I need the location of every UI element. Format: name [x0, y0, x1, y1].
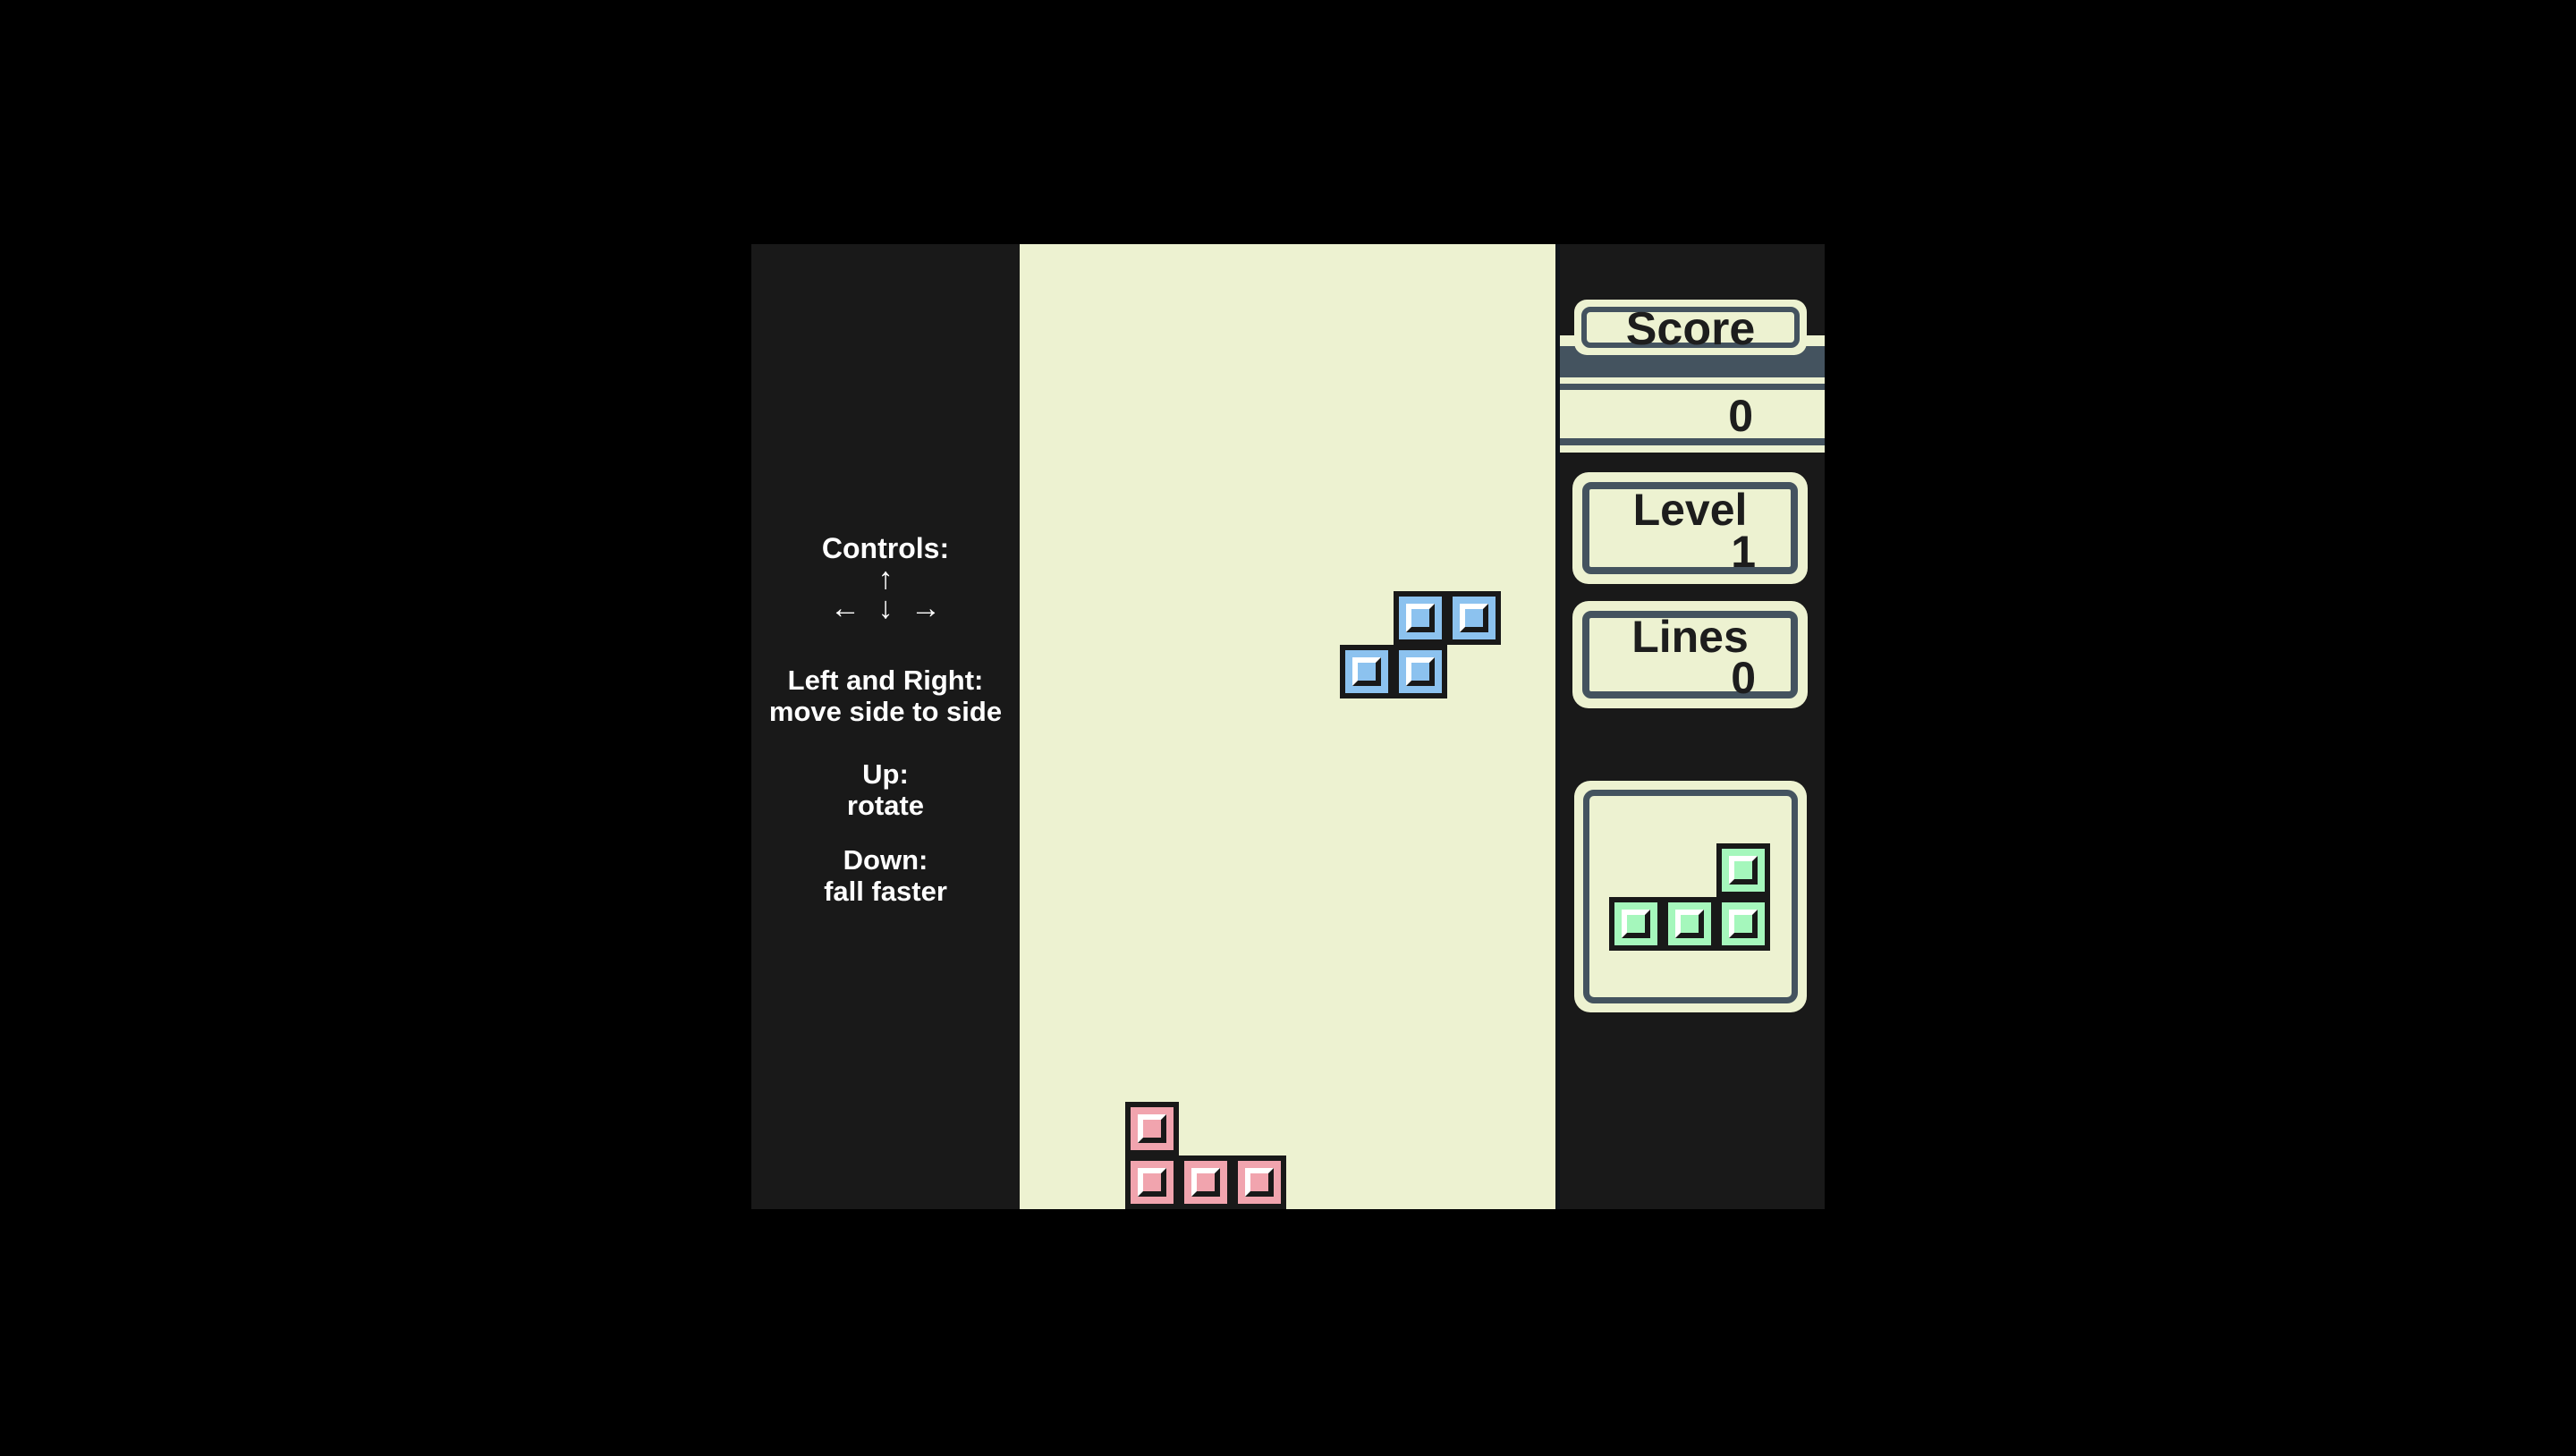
instruction-line: fall faster — [751, 876, 1020, 907]
instruction-line: Down: — [751, 844, 1020, 876]
score-label-box: Score — [1574, 300, 1807, 355]
landed-piece-j — [1020, 244, 1555, 1209]
controls-panel: Controls: ↑ ← ↓ → Left and Right: move s… — [751, 244, 1020, 1209]
controls-title: Controls: — [751, 532, 1020, 564]
block-bevel — [1729, 910, 1758, 938]
tetris-block — [1663, 897, 1716, 951]
instruction-left-right: Left and Right: move side to side — [751, 665, 1020, 727]
block-bevel — [1245, 1168, 1274, 1197]
left-down-right-arrow-icons: ← ↓ → — [751, 594, 1020, 623]
tetris-block — [1716, 843, 1770, 897]
score-label: Score — [1574, 306, 1807, 352]
tetris-block — [1716, 897, 1770, 951]
instruction-line: Left and Right: — [751, 665, 1020, 696]
lines-label: Lines — [1572, 614, 1808, 659]
tetris-block — [1125, 1155, 1179, 1209]
banner-stripe — [1560, 445, 1825, 453]
score-value: 0 — [1560, 394, 1825, 438]
arrow-keys-diagram: ↑ ← ↓ → — [751, 564, 1020, 623]
tetris-game: Controls: ↑ ← ↓ → Left and Right: move s… — [751, 244, 1825, 1209]
block-bevel — [1191, 1168, 1220, 1197]
level-box: Level 1 — [1572, 472, 1808, 584]
next-piece-preview-box — [1574, 781, 1807, 1012]
banner-stripe — [1560, 384, 1825, 390]
level-label: Level — [1572, 487, 1808, 532]
instruction-down: Down: fall faster — [751, 844, 1020, 907]
tetris-block — [1179, 1155, 1233, 1209]
tetris-block — [1609, 897, 1663, 951]
instruction-up: Up: rotate — [751, 758, 1020, 821]
banner-stripe — [1560, 377, 1825, 384]
instruction-line: move side to side — [751, 696, 1020, 727]
instruction-line: Up: — [751, 758, 1020, 790]
block-bevel — [1729, 856, 1758, 885]
block-bevel — [1675, 910, 1704, 938]
next-piece-l — [1574, 781, 1807, 1012]
lines-value: 0 — [1572, 656, 1808, 700]
instruction-line: rotate — [751, 790, 1020, 821]
status-panel: 0 Score Level 1 Lines 0 — [1560, 244, 1825, 1209]
tetris-block — [1125, 1102, 1179, 1155]
lines-box: Lines 0 — [1572, 601, 1808, 708]
block-bevel — [1138, 1168, 1166, 1197]
banner-stripe — [1560, 438, 1825, 445]
playfield[interactable] — [1020, 244, 1555, 1209]
up-arrow-icon: ↑ — [751, 564, 1020, 594]
block-bevel — [1138, 1114, 1166, 1143]
level-value: 1 — [1572, 529, 1808, 574]
tetris-block — [1233, 1155, 1286, 1209]
page-background: { "window": { "width": 2880, "height": 1… — [0, 0, 2576, 1456]
block-bevel — [1622, 910, 1650, 938]
score-value-row: 0 — [1560, 390, 1825, 438]
